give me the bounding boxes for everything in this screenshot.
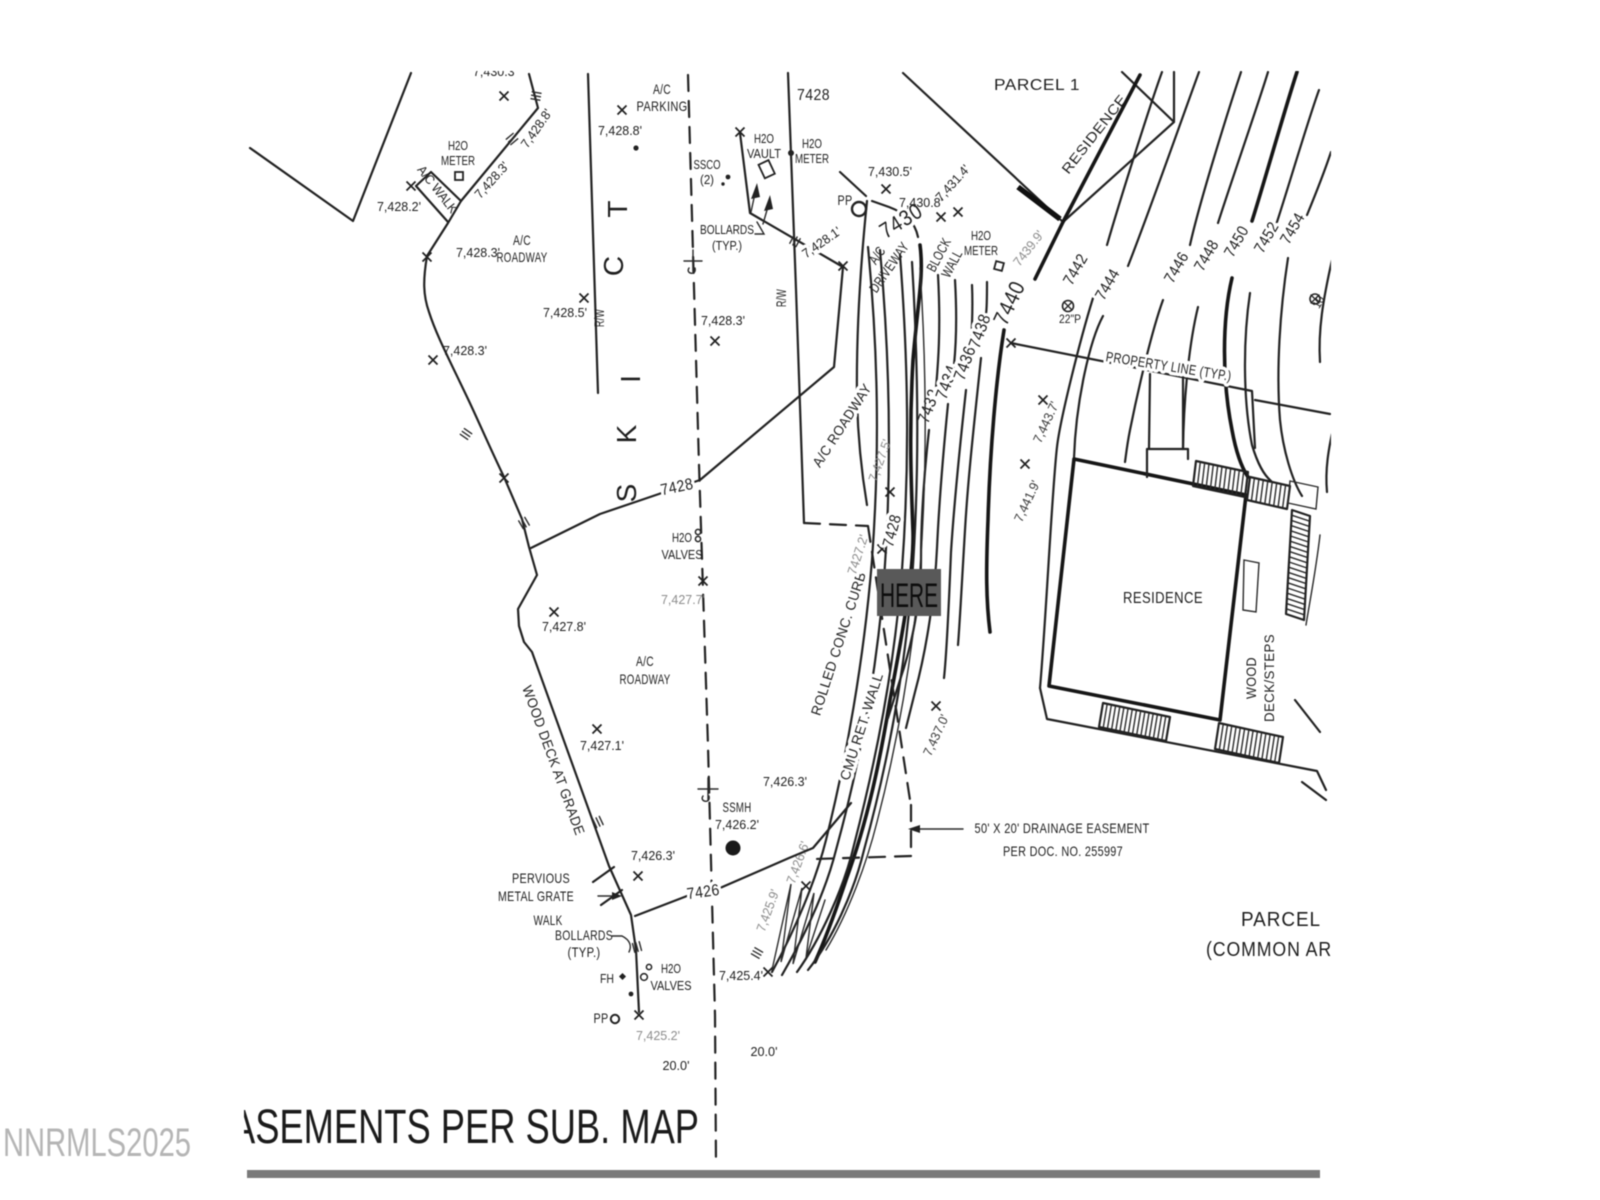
svg-text:ASEMENTS PER SUB. MAP: ASEMENTS PER SUB. MAP [231,1101,699,1154]
svg-text:RESIDENCE: RESIDENCE [1123,590,1203,607]
svg-text:(TYP.): (TYP.) [568,944,601,960]
svg-text:C: C [598,256,629,276]
svg-text:7,428.2': 7,428.2' [377,199,421,214]
svg-text:VAULT: VAULT [747,146,781,161]
svg-text:PP: PP [838,192,853,208]
svg-text:22"P: 22"P [1059,312,1081,326]
svg-text:H2O: H2O [971,228,991,243]
svg-text:(TYP.): (TYP.) [712,238,742,253]
svg-text:SSMH: SSMH [723,799,752,815]
svg-text:I: I [615,375,646,383]
svg-text:PER DOC. NO. 255997: PER DOC. NO. 255997 [1003,843,1123,859]
svg-text:WALK: WALK [534,912,563,928]
svg-text:7,426.3': 7,426.3' [631,848,675,863]
svg-text:20.0': 20.0' [751,1044,778,1059]
svg-text:BOLLARDS: BOLLARDS [555,927,613,943]
svg-text:(COMMON AR: (COMMON AR [1206,939,1332,961]
svg-text:METAL GRATE: METAL GRATE [498,888,574,904]
svg-text:7,428.3': 7,428.3' [443,343,487,358]
svg-text:7,427.8': 7,427.8' [542,619,586,634]
svg-text:7,427.7': 7,427.7' [661,592,705,607]
svg-text:H2O: H2O [802,136,822,151]
svg-text:H2O: H2O [754,131,774,146]
svg-text:7428: 7428 [797,87,830,104]
svg-text:20.0': 20.0' [663,1058,690,1073]
svg-text:ROADWAY: ROADWAY [620,671,671,687]
svg-text:R/W: R/W [591,309,607,327]
svg-text:METER: METER [441,153,475,168]
svg-text:7,430.5': 7,430.5' [868,164,912,179]
svg-text:7,428.8': 7,428.8' [598,123,642,138]
svg-text:ROADWAY: ROADWAY [497,249,548,265]
svg-text:H2O: H2O [448,138,468,153]
svg-text:H2O: H2O [672,530,692,545]
svg-text:7,426.3': 7,426.3' [763,774,807,789]
svg-text:DECK/STEPS: DECK/STEPS [1261,634,1277,722]
svg-text:SSCO: SSCO [694,157,721,172]
svg-text:7,428.3': 7,428.3' [701,313,745,328]
svg-text:T: T [602,200,633,217]
svg-text:NNRMLS2025: NNRMLS2025 [3,1121,191,1165]
svg-text:HERE: HERE [880,577,938,615]
svg-text:METER: METER [795,151,829,166]
svg-text:A/C: A/C [636,653,654,669]
svg-text:VALVES: VALVES [651,978,692,993]
svg-text:A/C: A/C [513,232,531,248]
svg-text:PERVIOUS: PERVIOUS [512,870,570,886]
svg-text:PARCEL 1: PARCEL 1 [994,77,1080,94]
svg-text:50' X 20' DRAINAGE EASEMENT: 50' X 20' DRAINAGE EASEMENT [975,820,1150,836]
svg-text:7,426.2': 7,426.2' [715,817,759,832]
svg-text:7,425.4': 7,425.4' [719,968,763,983]
svg-text:PARCEL: PARCEL [1241,909,1321,931]
svg-text:VALVES: VALVES [662,547,703,562]
svg-text:S: S [611,484,642,503]
svg-text:A/C: A/C [653,81,671,97]
svg-text:WOOD: WOOD [1243,657,1259,699]
svg-text:R/W: R/W [773,289,789,307]
svg-text:H2O: H2O [661,961,681,976]
svg-text:7,428.5': 7,428.5' [543,305,587,320]
svg-text:FH: FH [600,971,614,986]
svg-text:(2): (2) [700,172,714,187]
svg-text:7,427.1': 7,427.1' [580,738,624,753]
svg-text:PARKING: PARKING [637,98,688,114]
svg-text:7,425.2': 7,425.2' [636,1028,680,1043]
svg-text:K: K [611,424,642,443]
svg-text:BOLLARDS: BOLLARDS [700,222,754,237]
svg-text:METER: METER [964,243,998,258]
svg-text:7,428.3': 7,428.3' [456,245,500,260]
svg-text:PP: PP [594,1010,609,1026]
